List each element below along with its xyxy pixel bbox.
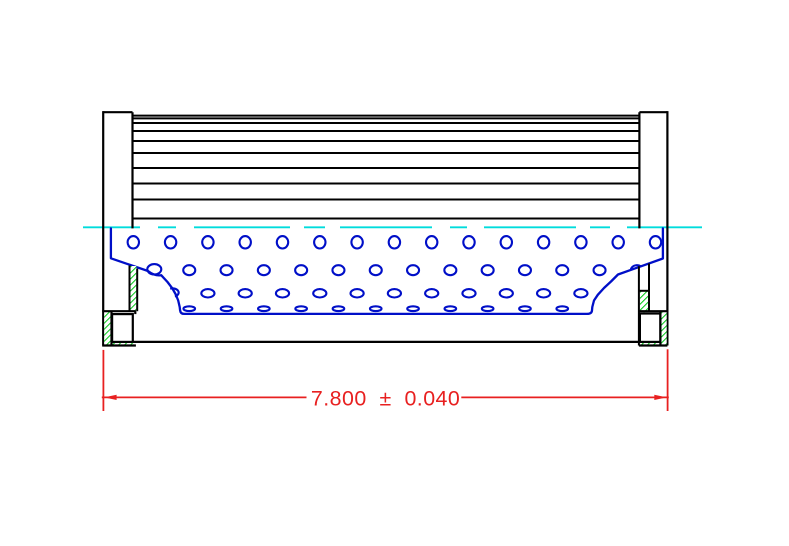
svg-text:7.800 ± 0.040: 7.800 ± 0.040 <box>311 387 460 411</box>
